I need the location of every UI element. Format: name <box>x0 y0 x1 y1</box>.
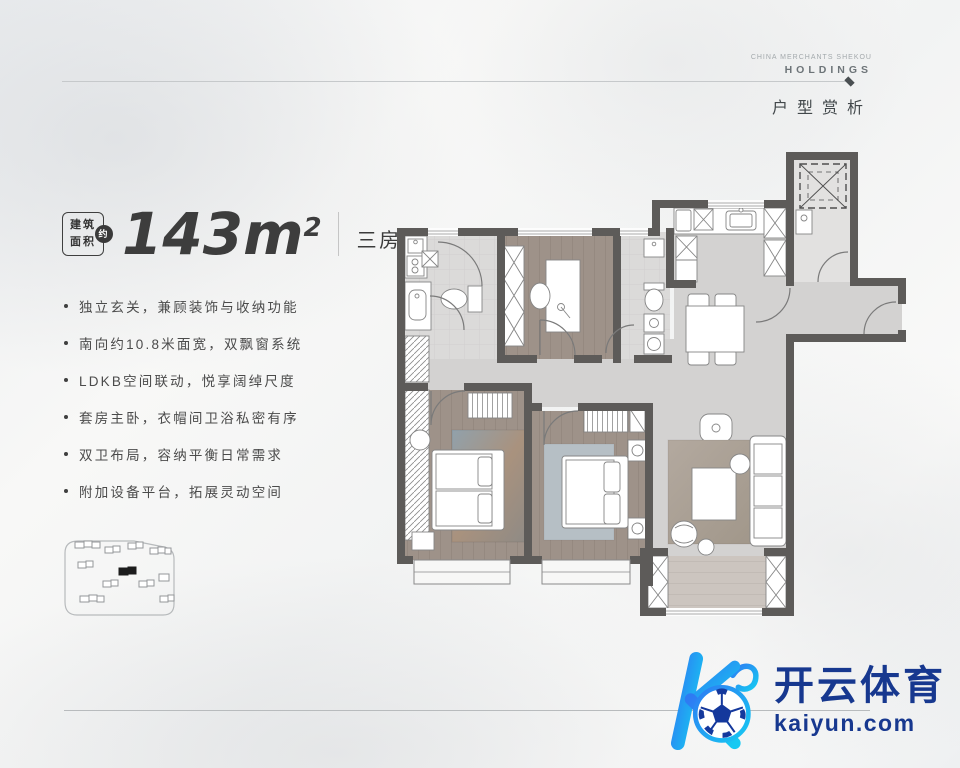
area-badge-circle: 约 <box>95 225 113 243</box>
toilet-bowl-icon <box>645 289 663 311</box>
master-closet-hatched <box>405 390 429 540</box>
bath2-vanity <box>644 314 664 332</box>
toilet-tank-icon <box>468 286 482 312</box>
feature-text: 独立玄关，兼顾装饰与收纳功能 <box>79 296 299 316</box>
faucet-icon <box>652 242 656 246</box>
round-stool-icon <box>410 430 430 450</box>
site-map-building <box>80 595 104 602</box>
kaiyun-watermark: 开云体育 kaiyun.com <box>654 644 946 758</box>
balcony-window-column <box>766 556 786 608</box>
feature-item: 南向约10.8米面宽，双飘窗系统 <box>64 335 302 350</box>
watermark-text: 开云体育 kaiyun.com <box>774 665 946 737</box>
area-number: 143m <box>122 200 304 268</box>
sofa-cushion <box>754 508 782 538</box>
pillow-icon <box>478 457 492 486</box>
site-map-building <box>139 580 154 587</box>
header-divider-line <box>62 81 850 82</box>
area-superscript: 2 <box>304 213 322 243</box>
watermark-domain: kaiyun.com <box>774 710 946 737</box>
site-map-building <box>160 595 174 602</box>
bedroom2-wardrobe <box>584 409 628 432</box>
coffee-table <box>692 468 736 520</box>
feature-text: 南向约10.8米面宽，双飘窗系统 <box>79 333 302 353</box>
feature-item: 独立玄关，兼顾装饰与收纳功能 <box>64 298 302 313</box>
feature-list: 独立玄关，兼顾装饰与收纳功能 南向约10.8米面宽，双飘窗系统 LDKB空间联动… <box>64 298 302 520</box>
sofa-cushion <box>754 444 782 474</box>
desk-chair-icon <box>530 283 550 309</box>
poster-page: CHINA MERCHANTS SHEKOU HOLDINGS 户型赏析 建筑 … <box>0 0 960 768</box>
entry-corridor-floor <box>786 282 902 338</box>
site-map-building <box>75 541 100 548</box>
floor-plan <box>390 148 910 660</box>
area-badge-bottom: 面积 <box>70 234 96 251</box>
bullet-dot-icon <box>64 452 68 456</box>
pillow-icon <box>478 494 492 523</box>
feature-item: 附加设备平台，拓展灵动空间 <box>64 483 302 498</box>
closet-hatched <box>405 336 429 382</box>
feature-item: 套房主卧，衣帽间卫浴私密有序 <box>64 409 302 424</box>
area-badge: 建筑 面积 约 <box>62 212 104 256</box>
kaiyun-logo-icon <box>654 644 764 758</box>
bath2-sink-icon <box>644 239 664 257</box>
watermark-title: 开云体育 <box>774 665 946 707</box>
site-map-building <box>103 580 118 587</box>
site-map-highlight-building <box>119 567 136 575</box>
washer-icon <box>644 334 664 354</box>
small-table-icon <box>698 539 714 555</box>
feature-text: 双卫布局，容纳平衡日常需求 <box>79 444 283 464</box>
faucet-icon <box>415 294 419 298</box>
bullet-dot-icon <box>64 341 68 345</box>
master-wardrobe <box>468 393 512 418</box>
site-map-building <box>150 547 171 554</box>
feature-item: LDKB空间联动，悦享阔绰尺度 <box>64 372 302 387</box>
bedroom-bench <box>412 532 434 550</box>
bullet-dot-icon <box>64 415 68 419</box>
area-value: 143m2 <box>122 200 322 268</box>
nightstand <box>628 518 647 539</box>
feature-item: 双卫布局，容纳平衡日常需求 <box>64 446 302 461</box>
fridge-icon <box>676 210 691 231</box>
bullet-dot-icon <box>64 304 68 308</box>
bay-window <box>542 560 630 584</box>
bullet-dot-icon <box>64 378 68 382</box>
vertical-divider <box>338 212 339 256</box>
pillow-icon <box>604 462 620 492</box>
section-title: 户型赏析 <box>751 94 872 118</box>
site-map <box>62 538 178 620</box>
site-map-building <box>105 546 120 553</box>
entry-console <box>796 210 812 234</box>
dining-table <box>686 306 744 352</box>
site-map-building <box>78 561 93 568</box>
hob-counter <box>676 236 697 282</box>
brand-name-en: CHINA MERCHANTS SHEKOU <box>751 54 872 61</box>
bay-window <box>414 560 510 584</box>
brand-holdings: HOLDINGS <box>751 64 872 76</box>
faucet-icon <box>414 240 418 244</box>
feature-text: 附加设备平台，拓展灵动空间 <box>79 481 283 501</box>
site-map-building <box>128 542 143 549</box>
area-badge-top: 建筑 <box>70 217 96 234</box>
brand-block: CHINA MERCHANTS SHEKOU HOLDINGS 户型赏析 <box>751 54 872 118</box>
bullet-dot-icon <box>64 489 68 493</box>
site-map-building <box>159 574 169 581</box>
nightstand <box>628 440 647 461</box>
feature-text: 套房主卧，衣帽间卫浴私密有序 <box>79 407 299 427</box>
pillow-icon <box>604 494 620 524</box>
faucet-icon <box>739 208 743 212</box>
side-table-icon <box>730 454 750 474</box>
feature-text: LDKB空间联动，悦享阔绰尺度 <box>79 370 296 390</box>
armchair-icon <box>700 414 732 442</box>
sofa-cushion <box>754 476 782 506</box>
